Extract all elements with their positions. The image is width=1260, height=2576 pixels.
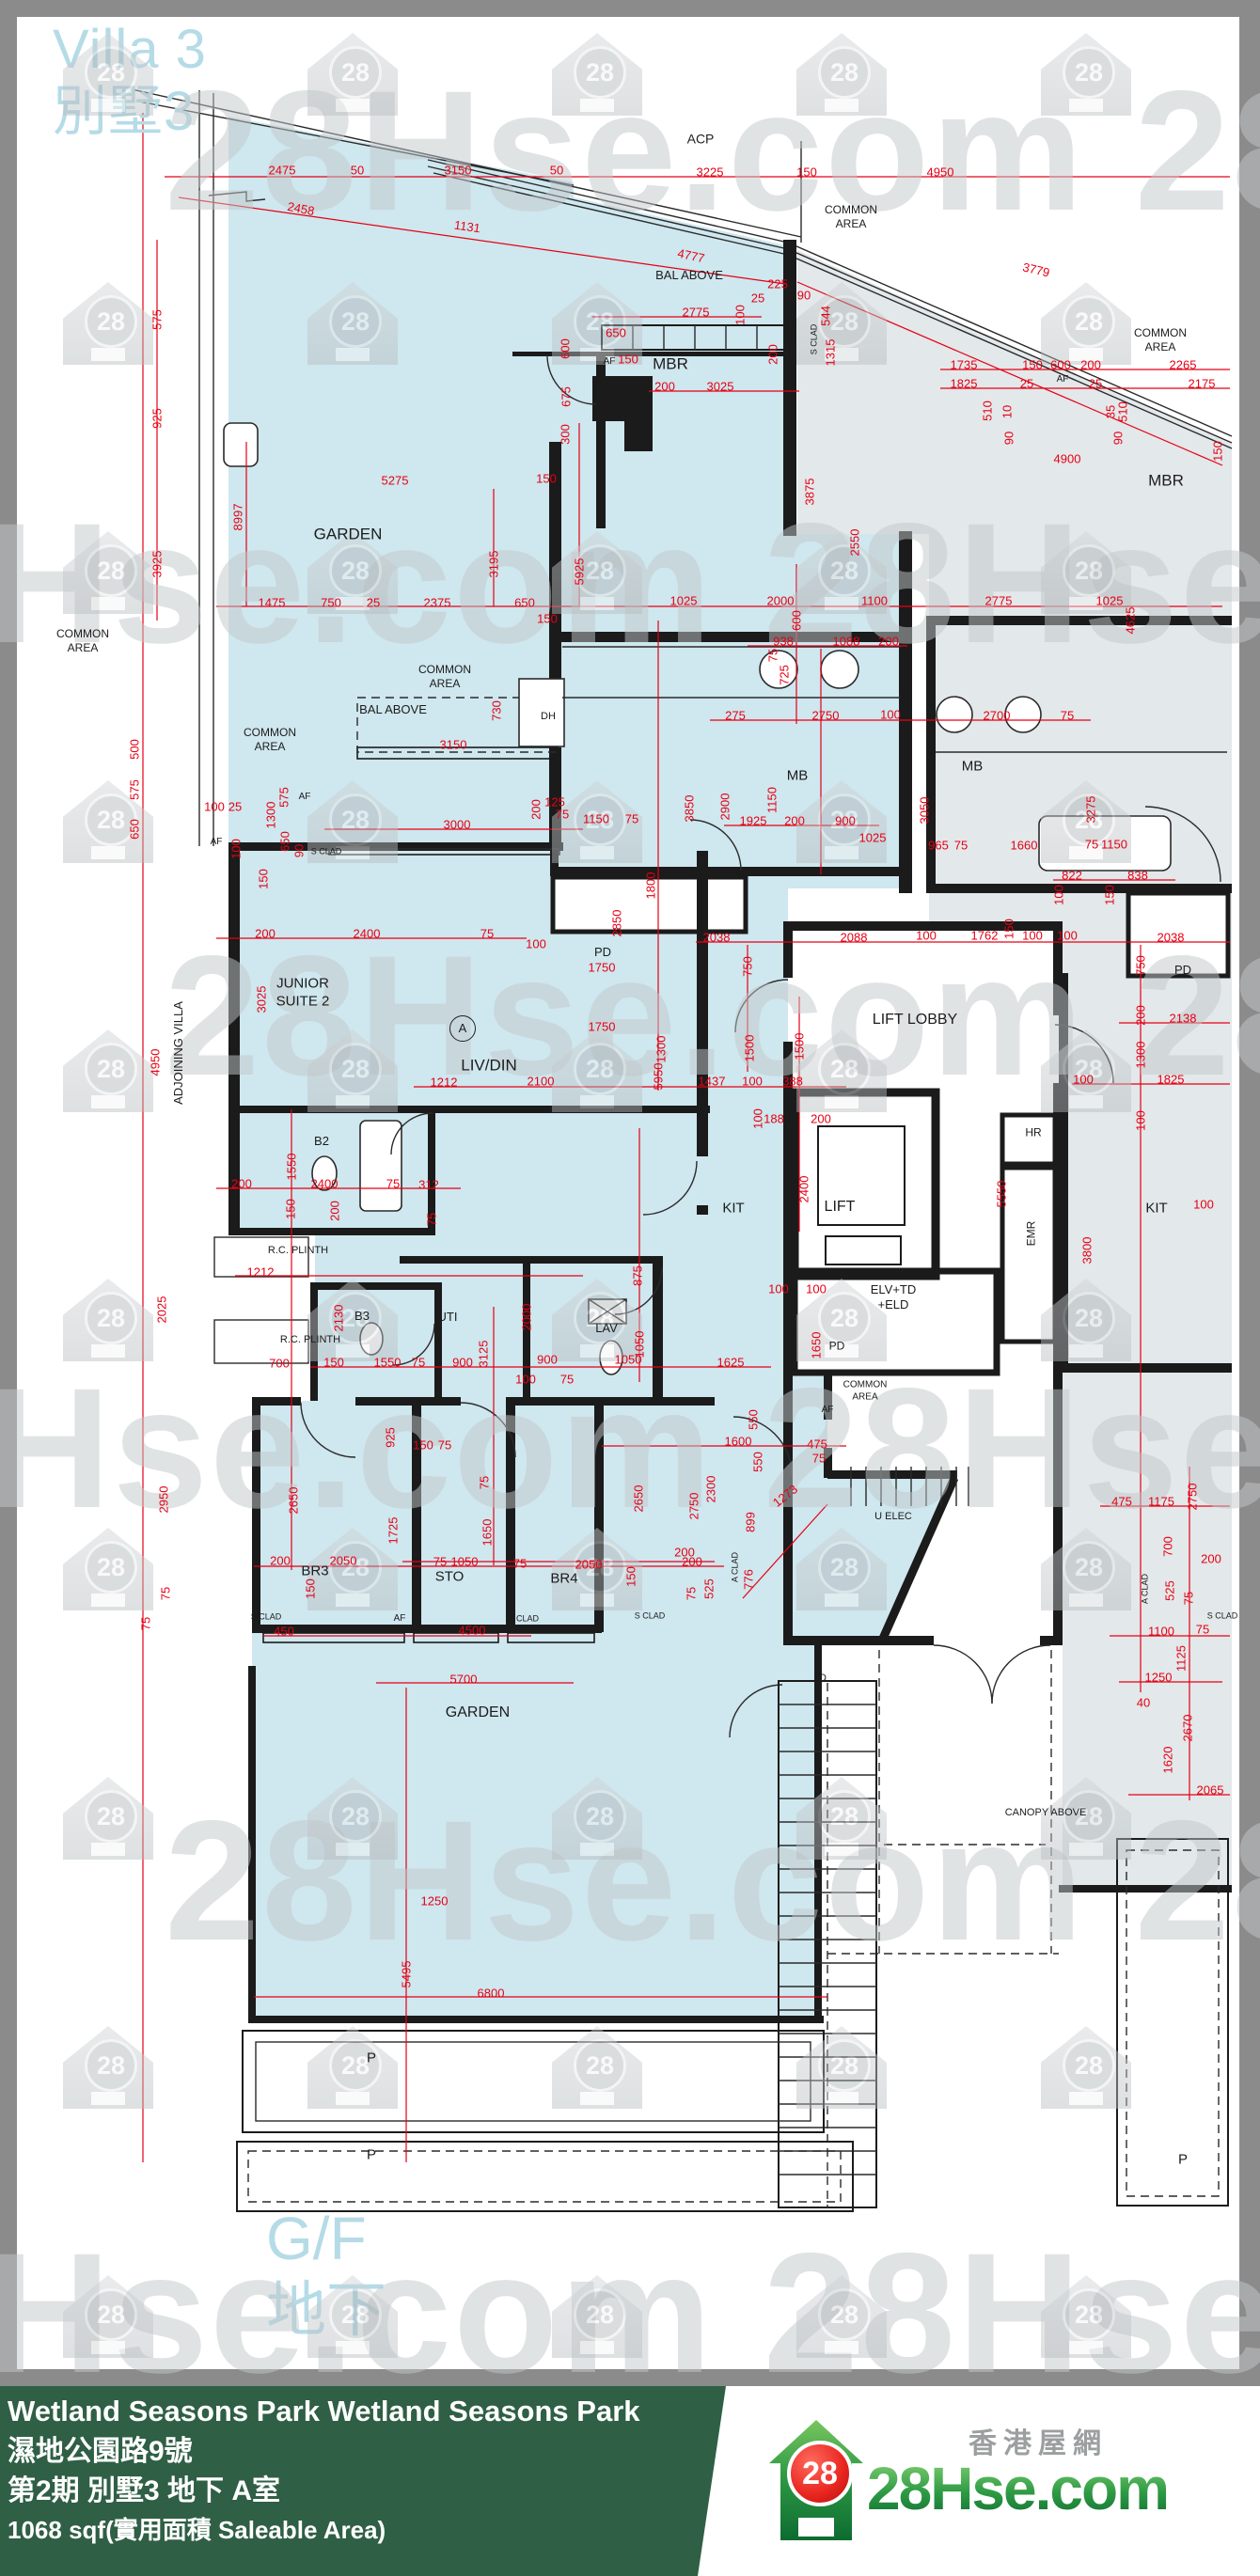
plan-title: Villa 3 別墅3 [53,19,207,143]
site-logo[interactable]: 28 香港屋網 28Hse.com [769,2420,1258,2570]
floor-label-en: G/F [266,2203,386,2274]
rc-plinth-box [214,1237,308,1277]
listing-info: Wetland Seasons Park Wetland Seasons Par… [0,2386,726,2576]
listing-unit: 第2期 別墅3 地下 A室 [8,2472,726,2511]
floorplan-svg [17,17,1239,2369]
pd-left-box [553,877,746,932]
floor-label: G/F 地下 [266,2203,386,2346]
footer-bar: Wetland Seasons Park Wetland Seasons Par… [0,2386,1260,2576]
floor-label-zh: 地下 [266,2274,386,2346]
logo-name: 28Hse.com [867,2454,1168,2523]
floorplan-canvas: Villa 3 別墅3 G/F 地下 [17,17,1239,2369]
listing-building-name: Wetland Seasons Park Wetland Seasons Par… [8,2392,726,2431]
listing-area: 1068 sqf(實用面積 Saleable Area) [8,2511,726,2549]
pd-right-box [1128,893,1228,976]
plan-title-zh: 別墅3 [53,81,207,143]
house-logo-icon: 28 [769,2420,863,2540]
plan-title-en: Villa 3 [53,19,207,81]
page: Villa 3 別墅3 G/F 地下 28Hse.com 28Hse.com28… [0,0,1260,2576]
logo-badge: 28 [787,2441,853,2506]
rc-plinth-box [214,1320,308,1363]
listing-address: 濕地公園路9號 [8,2431,726,2472]
